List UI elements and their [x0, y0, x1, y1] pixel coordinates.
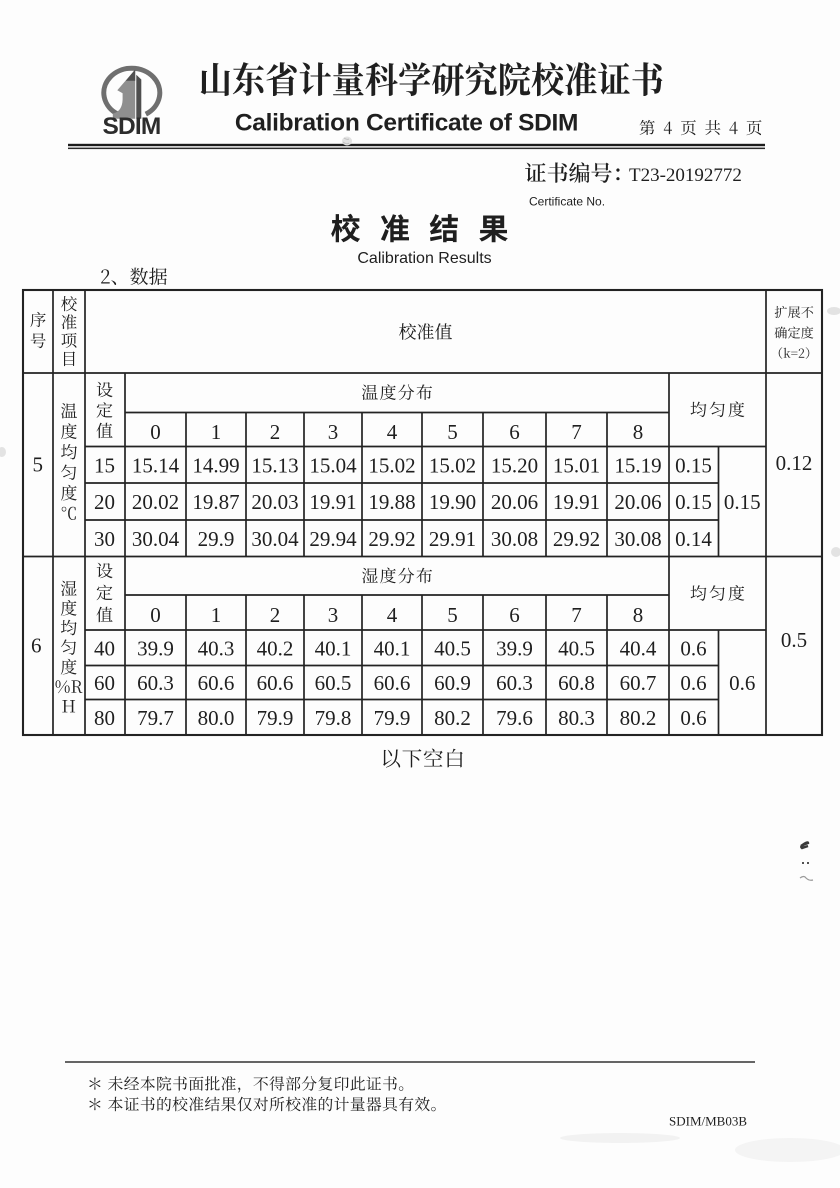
svg-text:15.02: 15.02 [368, 453, 415, 477]
svg-text:79.7: 79.7 [137, 706, 174, 730]
svg-text:2: 2 [270, 603, 281, 627]
svg-text:0.6: 0.6 [729, 671, 755, 695]
svg-text:40.5: 40.5 [558, 636, 595, 660]
svg-text:4: 4 [387, 603, 398, 627]
svg-text:60.6: 60.6 [374, 671, 411, 695]
svg-text:15: 15 [94, 453, 115, 477]
svg-text:4: 4 [387, 420, 398, 444]
svg-text:20.06: 20.06 [614, 490, 661, 514]
svg-text:29.94: 29.94 [309, 527, 357, 551]
svg-text:20: 20 [94, 490, 115, 514]
svg-text:60.6: 60.6 [257, 671, 294, 695]
svg-text:0.15: 0.15 [675, 453, 712, 477]
svg-text:1: 1 [211, 420, 222, 444]
svg-text:20.06: 20.06 [491, 490, 538, 514]
svg-text:60.9: 60.9 [434, 671, 471, 695]
svg-text:1: 1 [211, 603, 222, 627]
svg-text:40.2: 40.2 [257, 636, 294, 660]
svg-text:15.04: 15.04 [309, 453, 357, 477]
svg-text:15.01: 15.01 [553, 453, 600, 477]
svg-text:20.03: 20.03 [251, 490, 298, 514]
svg-text:29.9: 29.9 [198, 527, 235, 551]
svg-text:6: 6 [509, 603, 520, 627]
svg-text:79.6: 79.6 [496, 706, 533, 730]
svg-text:0.14: 0.14 [675, 527, 712, 551]
svg-text:79.9: 79.9 [374, 706, 411, 730]
svg-text:8: 8 [633, 603, 644, 627]
svg-text:19.90: 19.90 [429, 490, 476, 514]
svg-text:60: 60 [94, 671, 115, 695]
svg-text:5: 5 [33, 453, 44, 477]
svg-text:15.19: 15.19 [614, 453, 661, 477]
svg-text:40.5: 40.5 [434, 636, 471, 660]
svg-text:19.87: 19.87 [192, 490, 239, 514]
svg-text:0.6: 0.6 [680, 706, 706, 730]
svg-text:60.3: 60.3 [496, 671, 533, 695]
svg-text:0: 0 [150, 420, 161, 444]
svg-text:15.14: 15.14 [132, 453, 180, 477]
svg-text:80: 80 [94, 706, 115, 730]
svg-text:0: 0 [150, 603, 161, 627]
svg-text:0.12: 0.12 [776, 451, 813, 475]
svg-text:39.9: 39.9 [496, 636, 533, 660]
svg-text:0.6: 0.6 [680, 636, 706, 660]
svg-text:2: 2 [270, 420, 281, 444]
svg-text:80.3: 80.3 [558, 706, 595, 730]
svg-text:29.91: 29.91 [429, 527, 476, 551]
svg-text:3: 3 [328, 603, 339, 627]
svg-text:T23-20192772: T23-20192772 [629, 165, 742, 186]
svg-text:0.6: 0.6 [680, 671, 706, 695]
svg-text:80.2: 80.2 [620, 706, 657, 730]
svg-text:14.99: 14.99 [192, 453, 239, 477]
svg-text:SDIM: SDIM [102, 113, 160, 140]
svg-text:60.6: 60.6 [198, 671, 235, 695]
svg-text:80.2: 80.2 [434, 706, 471, 730]
svg-text:30.08: 30.08 [491, 527, 538, 551]
svg-text:20.02: 20.02 [132, 490, 179, 514]
svg-text:8: 8 [633, 420, 644, 444]
svg-text:0.15: 0.15 [675, 490, 712, 514]
svg-text:6: 6 [509, 420, 520, 444]
svg-text:Calibration Certificate of SDI: Calibration Certificate of SDIM [235, 110, 578, 137]
svg-text:7: 7 [571, 420, 582, 444]
svg-text:60.5: 60.5 [315, 671, 352, 695]
svg-text:30.04: 30.04 [132, 527, 180, 551]
svg-text:39.9: 39.9 [137, 636, 174, 660]
svg-text:5: 5 [447, 603, 458, 627]
svg-text:80.0: 80.0 [198, 706, 235, 730]
svg-text:79.8: 79.8 [315, 706, 352, 730]
svg-text:Certificate No.: Certificate No. [529, 195, 605, 209]
svg-text:19.91: 19.91 [309, 490, 356, 514]
svg-text:6: 6 [31, 634, 42, 658]
svg-text:30: 30 [94, 527, 115, 551]
svg-text:15.13: 15.13 [251, 453, 298, 477]
svg-text:60.3: 60.3 [137, 671, 174, 695]
svg-text:40: 40 [94, 636, 115, 660]
svg-text:5: 5 [447, 420, 458, 444]
svg-text:29.92: 29.92 [368, 527, 415, 551]
svg-text:40.1: 40.1 [315, 636, 352, 660]
svg-text:19.91: 19.91 [553, 490, 600, 514]
svg-text:30.04: 30.04 [251, 527, 299, 551]
svg-text:15.02: 15.02 [429, 453, 476, 477]
svg-text:SDIM/MB03B: SDIM/MB03B [669, 1114, 747, 1129]
svg-text:19.88: 19.88 [368, 490, 415, 514]
svg-text:3: 3 [328, 420, 339, 444]
svg-text:0.15: 0.15 [724, 490, 761, 514]
svg-text:29.92: 29.92 [553, 527, 600, 551]
svg-text:15.20: 15.20 [491, 453, 538, 477]
svg-text:60.8: 60.8 [558, 671, 595, 695]
svg-text:79.9: 79.9 [257, 706, 294, 730]
svg-text:30.08: 30.08 [614, 527, 661, 551]
svg-text:40.1: 40.1 [374, 636, 411, 660]
svg-text:7: 7 [571, 603, 582, 627]
svg-text:60.7: 60.7 [620, 671, 657, 695]
svg-text:40.3: 40.3 [198, 636, 235, 660]
svg-text:0.5: 0.5 [781, 628, 807, 652]
svg-text:40.4: 40.4 [620, 636, 657, 660]
svg-text:Calibration Results: Calibration Results [357, 250, 491, 267]
